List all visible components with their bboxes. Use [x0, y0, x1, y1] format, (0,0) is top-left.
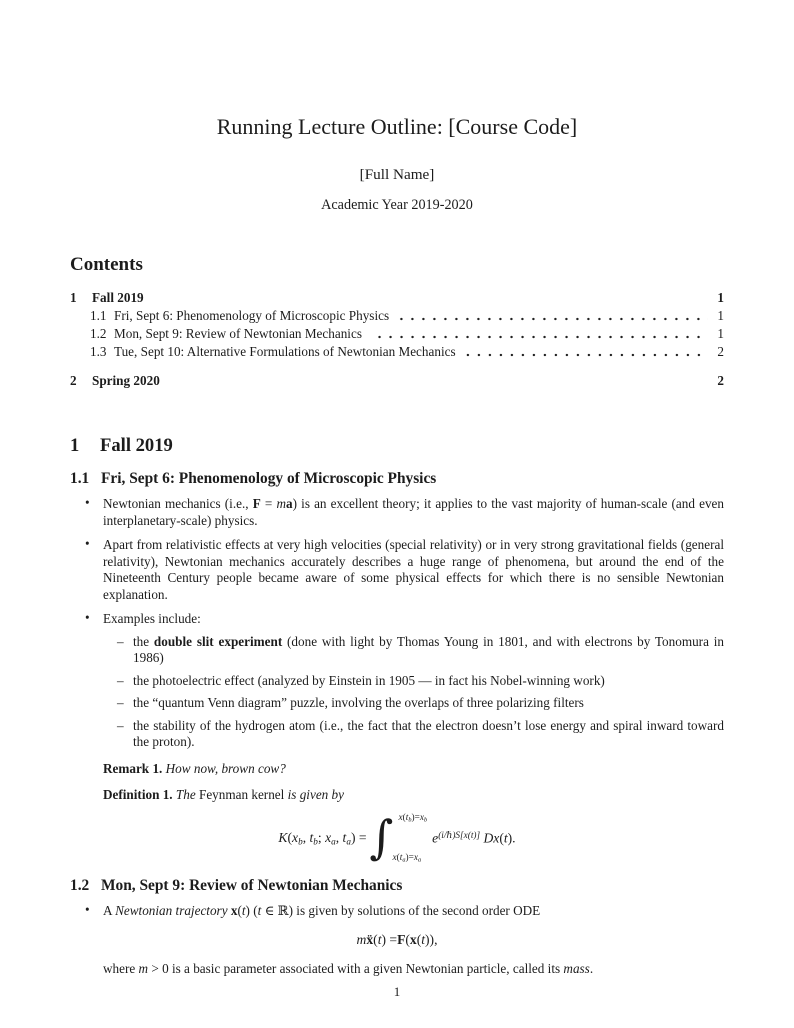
dash-icon: – — [117, 634, 124, 651]
remark-paragraph: Remark 1. How now, brown cow? — [70, 761, 724, 778]
dash-icon: – — [117, 673, 124, 690]
formula-lhs: K(xb, tb; xa, ta) = — [278, 830, 366, 848]
toc-entries: 1Fall 201911.1Fri, Sept 6: Phenomenology… — [70, 290, 724, 390]
toc-entry-label: Tue, Sept 10: Alternative Formulations o… — [114, 344, 456, 361]
document-content: Running Lecture Outline: [Course Code] [… — [0, 114, 794, 977]
toc-entry-label: Mon, Sept 9: Review of Newtonian Mechani… — [114, 326, 362, 343]
definition-paragraph: Definition 1. The Feynman kernel is give… — [70, 787, 724, 804]
bullet-icon: • — [85, 902, 90, 919]
document-title: Running Lecture Outline: [Course Code] — [70, 114, 724, 140]
toc-entry: 1.1Fri, Sept 6: Phenomenology of Microsc… — [70, 308, 724, 325]
bullet-text: A Newtonian trajectory x(t) (t ∈ ℝ) is g… — [103, 903, 540, 918]
bullet-item: • Newtonian mechanics (i.e., F = ma) is … — [70, 496, 724, 529]
sub-item-text: the stability of the hydrogen atom (i.e.… — [133, 718, 724, 750]
toc-entry-label: Spring 2020 — [92, 373, 160, 390]
bullet-icon: • — [85, 536, 90, 553]
toc-dot-leader — [399, 317, 708, 321]
document-date: Academic Year 2019-2020 — [70, 197, 724, 215]
document-page: Running Lecture Outline: [Course Code] [… — [0, 0, 794, 1028]
toc-entry-number: 1.1 — [90, 308, 114, 325]
integral-limits: x(tb)=xb x(ta)=xa — [394, 814, 428, 864]
subsection-number: 1.1 — [70, 469, 101, 488]
formula-integrand: e(i/ℏ)S[x(t)] Dx(t). — [432, 830, 515, 848]
dash-icon: – — [117, 718, 124, 735]
toc-entry-number: 2 — [70, 373, 92, 390]
bullet-text: Newtonian mechanics (i.e., F = ma) is an… — [103, 496, 724, 528]
toc-entry: 1.3Tue, Sept 10: Alternative Formulation… — [70, 344, 724, 361]
toc-entry-page: 2 — [716, 344, 724, 361]
toc-entry: 2Spring 20202 — [70, 373, 724, 390]
toc-entry-label: Fall 2019 — [92, 290, 144, 307]
section-title: Fall 2019 — [100, 435, 173, 456]
toc-entry-label: Fri, Sept 6: Phenomenology of Microscopi… — [114, 308, 389, 325]
bullet-icon: • — [85, 610, 90, 627]
toc-entry-page: 1 — [716, 308, 724, 325]
sub-item: – the stability of the hydrogen atom (i.… — [70, 718, 724, 751]
sub-item-text: the photoelectric effect (analyzed by Ei… — [133, 673, 605, 688]
sub-item-text: the double slit experiment (done with li… — [133, 634, 724, 666]
subsection-heading-1-1: 1.1Fri, Sept 6: Phenomenology of Microsc… — [70, 469, 724, 488]
toc-entry: 1.2Mon, Sept 9: Review of Newtonian Mech… — [70, 326, 724, 343]
contents-heading: Contents — [70, 253, 724, 277]
integral-group: ∫ x(tb)=xb x(ta)=xa — [370, 814, 428, 864]
display-formula-feynman-kernel: K(xb, tb; xa, ta) = ∫ x(tb)=xb x(ta)=xa … — [70, 814, 724, 864]
document-author: [Full Name] — [70, 165, 724, 184]
bullet-item: • Apart from relativistic effects at ver… — [70, 537, 724, 603]
bullet-item: • Examples include: — [70, 611, 724, 628]
sub-item-text: the “quantum Venn diagram” puzzle, invol… — [133, 695, 584, 710]
section-number: 1 — [70, 434, 100, 457]
bullet-text: Apart from relativistic effects at very … — [103, 537, 724, 602]
dash-icon: – — [117, 695, 124, 712]
formula-text: m ẍ(t) = F(x(t)), — [357, 932, 438, 949]
sub-item: – the double slit experiment (done with … — [70, 634, 724, 667]
toc-entry-page: 2 — [716, 373, 724, 390]
bullet-icon: • — [85, 495, 90, 512]
toc-entry-number: 1.3 — [90, 344, 114, 361]
bullet-item: • A Newtonian trajectory x(t) (t ∈ ℝ) is… — [70, 903, 724, 920]
subsection-number: 1.2 — [70, 876, 101, 895]
sub-item: – the “quantum Venn diagram” puzzle, inv… — [70, 695, 724, 712]
display-formula-newton-ode: m ẍ(t) = F(x(t)), — [70, 932, 724, 949]
subsection-title: Mon, Sept 9: Review of Newtonian Mechani… — [101, 877, 402, 894]
page-number: 1 — [0, 984, 794, 1000]
toc-dot-leader — [466, 353, 708, 357]
sub-item-list: – the double slit experiment (done with … — [70, 634, 724, 751]
toc-dot-leader — [154, 299, 708, 303]
section-heading-fall-2019: 1Fall 2019 — [70, 434, 724, 457]
toc-entry-number: 1 — [70, 290, 92, 307]
bullet-text: Examples include: — [103, 611, 201, 626]
toc-entry: 1Fall 20191 — [70, 290, 724, 307]
toc-entry-page: 1 — [716, 290, 724, 307]
subsection-heading-1-2: 1.2Mon, Sept 9: Review of Newtonian Mech… — [70, 876, 724, 895]
integral-upper-limit: x(tb)=xb — [399, 814, 428, 824]
subsection-title: Fri, Sept 6: Phenomenology of Microscopi… — [101, 470, 436, 487]
sub-item: – the photoelectric effect (analyzed by … — [70, 673, 724, 690]
where-clause: where m > 0 is a basic parameter associa… — [70, 961, 724, 978]
toc-entry-number: 1.2 — [90, 326, 114, 343]
integral-sign-icon: ∫ — [370, 816, 394, 858]
toc-entry-page: 1 — [716, 326, 724, 343]
toc-dot-leader — [170, 383, 708, 387]
toc-dot-leader — [372, 335, 708, 339]
